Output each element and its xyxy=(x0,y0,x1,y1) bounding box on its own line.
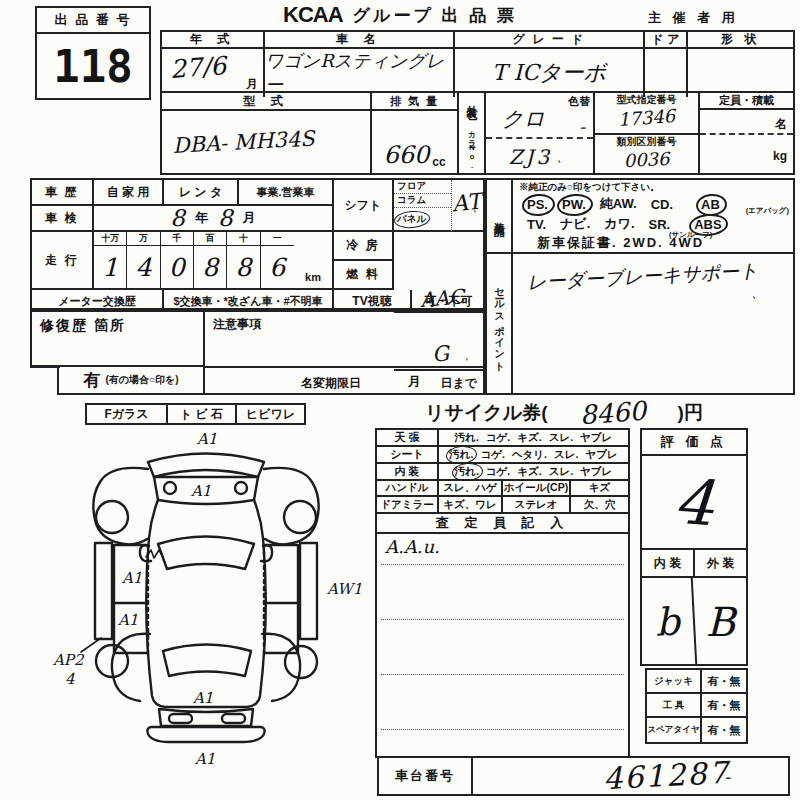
sales-point-value: レーダーブレーキサポート xyxy=(526,258,759,296)
cond-label: ハンドル xyxy=(377,481,439,495)
wheel-front-left xyxy=(96,501,128,533)
tools-value: 有・無 xyxy=(702,694,746,716)
mileage-digit: 8 xyxy=(194,246,227,288)
interior-grade: b xyxy=(640,577,698,668)
spare-tire-label: スペアタイヤ xyxy=(647,718,702,742)
cond-label2: ホイール(CP) xyxy=(503,481,571,495)
cond-label: 天 張 xyxy=(377,430,439,445)
cond-label2: ステレオ xyxy=(503,497,571,512)
color-change-value: - xyxy=(579,116,585,137)
lot-number-box: 出 品 番 号 118 xyxy=(35,6,151,100)
place-1k: 千 xyxy=(161,232,194,246)
chassis-mark: - xyxy=(724,766,730,787)
repair-yes-box: 有 (有の場合○印を) xyxy=(57,365,205,395)
tail-light-left xyxy=(169,714,192,723)
windshield xyxy=(158,537,254,570)
meter-legend: $交換車・*改ざん車・#不明車 xyxy=(164,290,334,312)
displacement-header: 排 気 量 xyxy=(372,93,457,111)
diagram-label-ap2: AP2 xyxy=(52,651,85,669)
condition-row-interior: 内 装 汚れ.コゲ.キズ.スレ.ヤブレ xyxy=(377,464,628,481)
cond-value: スレ、ハゲ xyxy=(439,481,503,495)
shaken-month-value: 8 xyxy=(218,205,233,231)
chassis-label: 車台番号 xyxy=(379,758,473,794)
front-bumper xyxy=(148,454,264,478)
year-value: 27/6 xyxy=(169,51,227,84)
sheet-title: KCAA グループ 出 品 票 xyxy=(240,2,560,28)
shape-header: 形 状 xyxy=(688,32,793,49)
score-header: 評 価 点 xyxy=(642,430,746,456)
car-name-value: ワゴンRスティングレー xyxy=(265,49,455,97)
cond-opt: コゲ. xyxy=(486,465,510,479)
score-value: 4 xyxy=(639,452,749,551)
diagram-label-left-upper: A1 xyxy=(121,569,142,587)
kcaa-logo: KCAA xyxy=(283,2,343,28)
cond-opt-circled: 汚れ. xyxy=(455,465,479,479)
cond-opt: ヤブレ xyxy=(585,448,617,462)
jack-value: 有・無 xyxy=(702,670,746,692)
diagram-label-ap2-count: 4 xyxy=(65,670,75,688)
ext-color-side: 外装色 カラーNo. xyxy=(459,93,486,173)
color-no-value: ZJ3 xyxy=(509,145,553,169)
cond-opt: ヤブレ xyxy=(580,431,612,445)
color-no-tick: 、 xyxy=(556,148,570,166)
ap2-leader-line xyxy=(81,638,101,652)
history-rental: レ ン タ xyxy=(164,180,239,206)
equipment-note: ※純正のみ○印をつけて下さい。 xyxy=(519,181,787,194)
jack-label: ジャッキ xyxy=(647,670,702,692)
equipment-box: 装備品 ※純正のみ○印をつけて下さい。 PS. PW. 純AW. CD. AB … xyxy=(485,178,795,254)
assessor-note: A.A.u. xyxy=(385,536,440,557)
name-header: 車 名 xyxy=(265,32,455,49)
tv-label: TV視聴 xyxy=(334,290,412,312)
front-light-right xyxy=(235,482,247,494)
diagram-label-hood: A1 xyxy=(190,482,211,500)
repair-step-line xyxy=(30,365,60,368)
meter-label: メーター交換歴 xyxy=(32,290,164,312)
assessor-header: 査 定 員 記 入 xyxy=(375,512,630,534)
cond-value2: キズ xyxy=(571,481,628,495)
capacity-col: 定員・積載 名 kg xyxy=(700,93,793,173)
door-cell xyxy=(645,49,688,97)
deadline-label: 名変期限日 xyxy=(301,375,361,392)
car-damage-diagram: A1 A1 A1 A1 AW1 AP2 4 A1 A1 xyxy=(45,422,367,794)
repair-box: 修復歴 箇所 xyxy=(30,310,205,367)
capacity-header: 定員・積載 xyxy=(700,93,793,110)
equipment-row3: 新車保証書. 2WD. 4WD xyxy=(519,234,787,252)
right-sill xyxy=(300,543,317,639)
class-number-value: 0036 xyxy=(595,146,699,172)
place-100k: 十万 xyxy=(94,232,127,246)
sales-point-side-label: セールスポイント xyxy=(487,254,513,393)
condition-row-mirror: ドアミラー キズ、ワレ ステレオ 欠、穴 xyxy=(377,497,628,512)
deadline-row: 名変期限日 月 日まで xyxy=(203,366,485,395)
year-cell: 27/6 月 xyxy=(162,49,265,97)
assessor-comment-box: A.A.u. xyxy=(375,532,630,758)
shape-cell xyxy=(688,49,793,97)
cond-label: シート xyxy=(377,447,439,462)
shaken-year-unit: 年 xyxy=(195,209,208,227)
condition-row-headliner: 天 張 汚れ.コゲ.キズ.スレ.ヤブレ xyxy=(377,430,628,447)
exterior-header: 外 装 xyxy=(695,550,746,576)
cond-opt: スレ. xyxy=(554,448,578,462)
equip-navi: ナビ. xyxy=(560,215,590,233)
equip-ab: AB xyxy=(701,197,720,212)
shift-option-floor: フロア xyxy=(394,180,451,194)
mileage-digit: 6 xyxy=(261,246,294,288)
equip-sr: SR. xyxy=(649,217,671,232)
shaken-year-value: 8 xyxy=(170,205,185,231)
recycle-value: 8460 xyxy=(547,394,679,433)
equip-abs: ABS xyxy=(694,217,721,232)
condition-table: 天 張 汚れ.コゲ.キズ.スレ.ヤブレ シート 汚れ.コゲ.ヘタリ.スレ.ヤブレ… xyxy=(375,428,630,514)
cond-label: ドアミラー xyxy=(377,497,439,512)
cond-opt: ヘタリ. xyxy=(512,448,547,462)
shaken-cell: 8 年 8 月 xyxy=(94,206,334,232)
cond-opt: キズ. xyxy=(517,465,541,479)
chassis-value: 461287 xyxy=(602,755,730,797)
repair-label: 修復歴 箇所 xyxy=(32,312,203,335)
rear-fender-right xyxy=(262,634,300,701)
displacement-unit: cc xyxy=(432,155,445,169)
mileage-digit: 8 xyxy=(227,246,260,288)
cond-opt: ヤブレ xyxy=(580,465,612,479)
notes-label: 注意事項 xyxy=(205,312,483,333)
shift-value-cell: AT 、 xyxy=(452,180,487,232)
color-value: クロ xyxy=(502,105,545,133)
fuel-label: 燃 料 xyxy=(334,261,394,290)
tools-label: 工 具 xyxy=(647,694,702,716)
diagram-label-rear-bottom: A1 xyxy=(194,750,215,768)
shift-option-column: コラム xyxy=(394,194,451,208)
door-header: ド ア xyxy=(645,32,688,49)
sales-point-side-text: セールスポイント xyxy=(492,280,506,368)
equip-ps: PS. xyxy=(527,197,548,212)
wheel-front-right xyxy=(284,501,316,533)
grade-header: グ レ ー ド xyxy=(455,32,645,49)
score-box: 評 価 点 4 xyxy=(640,428,748,550)
cond-opt: 汚れ. xyxy=(455,431,479,445)
mileage-digit: 4 xyxy=(127,246,160,288)
mileage-unit: km xyxy=(294,232,334,290)
exterior-grade: B xyxy=(695,578,746,666)
int-ext-box: 内 装 外 装 b B xyxy=(640,548,748,666)
model-value: DBA- MH34S xyxy=(161,106,371,159)
place-10: 十 xyxy=(227,232,260,246)
repair-yes: 有 xyxy=(83,369,100,392)
color-col: 色替 クロ - ZJ3 、 xyxy=(486,93,595,173)
auction-sheet: 出 品 番 号 118 KCAA グループ 出 品 票 主 催 者 用 年 式 … xyxy=(0,0,800,800)
history-private: 自 家 用 xyxy=(94,180,164,206)
condition-row-seat: シート 汚れ.コゲ.ヘタリ.スレ.ヤブレ xyxy=(377,447,628,464)
mileage-label: 走 行 xyxy=(32,232,94,290)
equipment-side-label: 装備品 xyxy=(487,180,513,252)
left-sill xyxy=(95,543,112,639)
year-header: 年 式 xyxy=(162,32,265,49)
lot-number-label: 出 品 番 号 xyxy=(37,8,149,34)
mileage-digit: 0 xyxy=(161,246,194,288)
place-1: 一 xyxy=(261,232,294,246)
notes-box: 注意事項 xyxy=(203,310,485,368)
cond-value: キズ、ワレ xyxy=(439,497,503,512)
shift-label: シフト xyxy=(334,180,394,232)
ext-color-label: 外装色 xyxy=(464,96,479,102)
aircon-label: 冷 房 xyxy=(334,232,394,261)
spare-tire-value: 有・無 xyxy=(702,718,746,742)
cond-opt-circled: 汚れ. xyxy=(449,448,473,462)
equip-tv: TV. xyxy=(527,217,546,232)
equip-cd: CD. xyxy=(651,197,673,212)
cond-opt: スレ. xyxy=(549,431,573,445)
equip-leather: カワ. xyxy=(604,215,634,233)
tail-light-right xyxy=(222,714,245,723)
front-light-left xyxy=(164,482,176,494)
displacement-value: 660 xyxy=(383,141,429,169)
accessories-box: ジャッキ 有・無 工 具 有・無 スペアタイヤ 有・無 xyxy=(645,668,748,744)
grade-value: T ICターボ xyxy=(455,49,645,97)
deadline-day: 日まで xyxy=(440,375,477,392)
cond-label: 内 装 xyxy=(377,464,439,479)
sales-point-tick: 、 xyxy=(751,284,765,302)
organizer-label: 主 催 者 用 xyxy=(648,9,739,27)
chassis-row: 車台番号 461287 - xyxy=(377,756,790,796)
capacity-weight-unit: kg xyxy=(700,135,793,163)
cond-value2: 欠、穴 xyxy=(571,497,628,512)
place-100: 百 xyxy=(194,232,227,246)
recycle-suffix: )円 xyxy=(678,400,703,426)
shift-option-panel: パネル xyxy=(397,213,426,226)
history-label: 車 歴 xyxy=(32,180,94,206)
color-no-label: カラーNo. xyxy=(467,126,477,170)
equipment-row1: PS. PW. 純AW. CD. AB (エアバッグ) xyxy=(519,194,787,214)
mileage-digit: 1 xyxy=(94,246,127,288)
diagram-label-rear: A1 xyxy=(192,689,213,707)
equip-pw: PW. xyxy=(562,197,586,212)
capacity-persons-unit: 名 xyxy=(700,110,793,135)
shaken-month-unit: 月 xyxy=(243,209,256,227)
history-block: 車 歴 自 家 用 レ ン タ 事業.営業車 車 検 8 年 8 月 走 行 十… xyxy=(30,178,485,310)
sheet-title-text: グループ 出 品 票 xyxy=(353,4,517,27)
tv-options: 可・不可 xyxy=(412,290,485,312)
repair-yes-note: (有の場合○印を) xyxy=(105,373,178,387)
type-cert-value: 17346 xyxy=(594,103,698,131)
vehicle-table-top: 年 式 車 名 グ レ ー ド ド ア 形 状 27/6 月 ワゴンRスティング… xyxy=(160,30,795,93)
shift-tick: 、 xyxy=(472,198,485,216)
recycle-row: リサイクル券( 8460 )円 xyxy=(425,398,795,428)
sales-point-box: セールスポイント レーダーブレーキサポート 、 xyxy=(485,252,795,395)
rear-fender-left xyxy=(112,634,150,701)
diagram-label-left-lower: A1 xyxy=(117,611,138,629)
deadline-month: 月 xyxy=(408,373,421,391)
shaken-label: 車 検 xyxy=(32,206,94,232)
displacement-col: 排 気 量 660 cc xyxy=(372,93,459,173)
cond-opt: コゲ. xyxy=(480,448,504,462)
lot-number-value: 118 xyxy=(37,34,149,98)
equipment-row2: TV. ナビ. カワ. SR. (サンルーフ) ABS xyxy=(519,214,787,234)
recycle-prefix: リサイクル券( xyxy=(425,400,548,426)
vehicle-table-bottom: 型 式 DBA- MH34S 排 気 量 660 cc 外装色 カラーNo. 色… xyxy=(160,91,795,175)
cert-col: 型式指定番号 17346 類別区別番号 0036 xyxy=(595,93,700,173)
cond-opt: キズ. xyxy=(517,431,541,445)
equip-aw: 純AW. xyxy=(600,195,637,213)
mileage-digits: 十万 万 千 百 十 一 1 4 0 8 8 6 xyxy=(94,232,294,290)
history-business: 事業.営業車 xyxy=(239,180,334,206)
shift-options: フロア コラム パネル xyxy=(394,180,452,232)
cond-opt: スレ. xyxy=(549,465,573,479)
rear-window xyxy=(163,645,251,677)
rear-bumper xyxy=(147,727,264,742)
interior-header: 内 装 xyxy=(642,550,695,576)
diagram-label-front: A1 xyxy=(196,430,217,448)
equipment-side-text: 装備品 xyxy=(492,213,507,219)
model-col: 型 式 DBA- MH34S xyxy=(162,93,372,173)
diagram-label-right-side: AW1 xyxy=(326,580,362,598)
place-10k: 万 xyxy=(127,232,160,246)
condition-row-handle: ハンドル スレ、ハゲ ホイール(CP) キズ xyxy=(377,481,628,497)
cond-opt: コゲ. xyxy=(486,431,510,445)
